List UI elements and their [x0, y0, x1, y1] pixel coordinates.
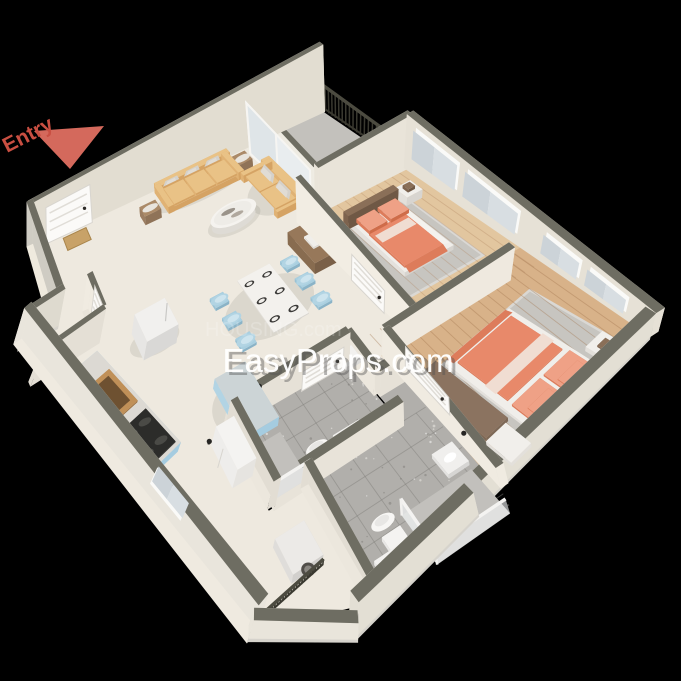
svg-text:EasyProps.com: EasyProps.com: [222, 342, 453, 379]
svg-text:HOUSING.com: HOUSING.com: [205, 319, 342, 341]
